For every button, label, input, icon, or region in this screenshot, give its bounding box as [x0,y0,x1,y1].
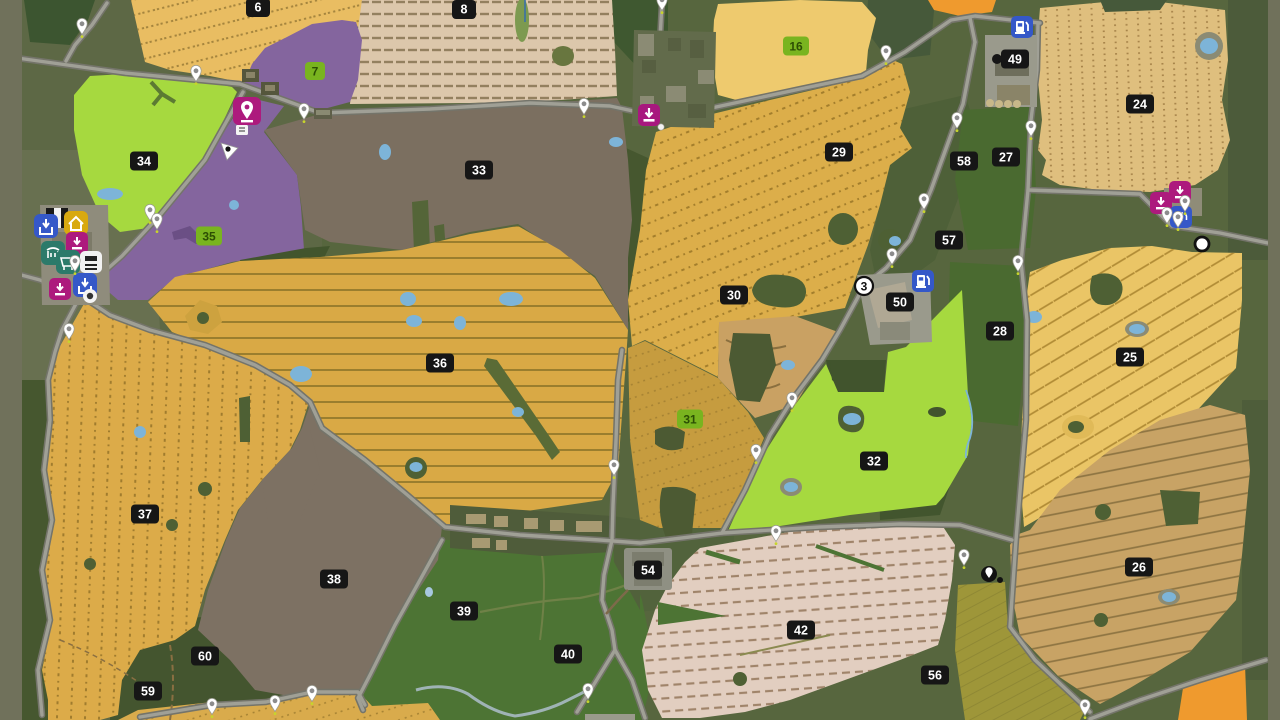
svg-text:37: 37 [138,508,152,522]
svg-text:24: 24 [1133,98,1147,112]
svg-text:30: 30 [727,289,741,303]
svg-text:60: 60 [198,650,212,664]
svg-text:27: 27 [999,151,1013,165]
svg-text:56: 56 [928,669,942,683]
svg-text:8: 8 [461,3,468,17]
svg-text:40: 40 [561,648,575,662]
svg-text:38: 38 [327,573,341,587]
svg-text:49: 49 [1008,53,1022,67]
svg-text:59: 59 [141,685,155,699]
svg-text:35: 35 [202,230,216,244]
svg-text:33: 33 [472,164,486,178]
svg-text:36: 36 [433,357,447,371]
svg-text:57: 57 [942,234,956,248]
svg-text:25: 25 [1123,351,1137,365]
svg-text:6: 6 [255,1,262,15]
svg-text:39: 39 [457,605,471,619]
svg-text:42: 42 [794,624,808,638]
svg-text:29: 29 [832,146,846,160]
svg-text:16: 16 [789,40,803,54]
svg-text:58: 58 [957,155,971,169]
svg-text:32: 32 [867,455,881,469]
svg-text:54: 54 [641,564,655,578]
svg-text:34: 34 [137,155,151,169]
svg-text:50: 50 [893,296,907,310]
svg-text:28: 28 [993,325,1007,339]
svg-text:3: 3 [861,280,868,294]
svg-text:26: 26 [1132,561,1146,575]
svg-text:7: 7 [312,65,319,79]
svg-text:31: 31 [683,413,697,427]
